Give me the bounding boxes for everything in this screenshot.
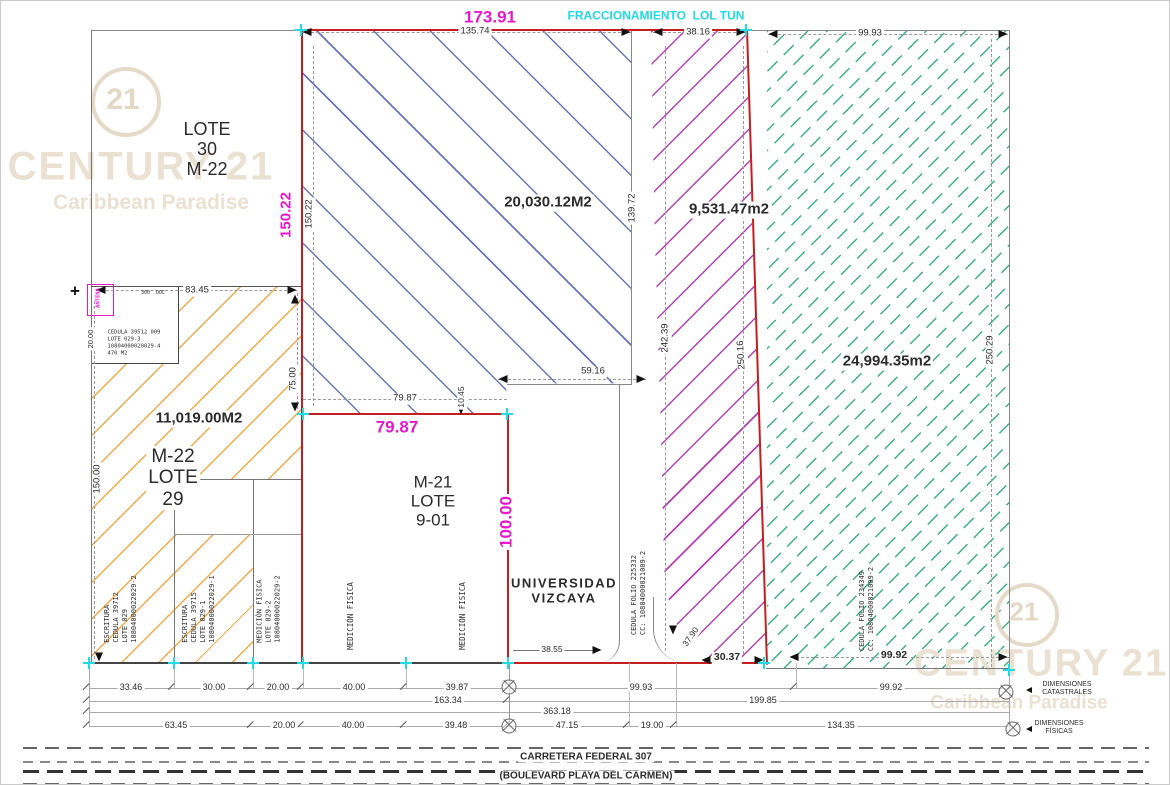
medicion-col-2: MEDICIÓN FISICA bbox=[346, 582, 356, 650]
dimension-arrow-icon bbox=[999, 653, 1008, 661]
fraccionamiento-label: FRACCIONAMIENTO LOL TUN bbox=[568, 9, 745, 22]
datum-circle-icon bbox=[1002, 718, 1023, 739]
dim-v: 242.39 bbox=[661, 321, 672, 354]
dim-fis: 20.00 bbox=[271, 720, 298, 730]
escritura-col-2: ESCRITURA CEDULA 39715 LOTE 029-1 108040… bbox=[181, 575, 217, 642]
dim-cat: 99.92 bbox=[878, 682, 905, 692]
survey-cross-icon bbox=[400, 657, 412, 669]
survey-cross-icon bbox=[740, 24, 752, 36]
drawing-line bbox=[766, 668, 1010, 669]
dim-guide-dashed bbox=[498, 379, 646, 380]
medicion-col-1: MEDICIÓN FISICA LOTE 029-2 1080400002202… bbox=[255, 575, 282, 642]
drawing-line bbox=[91, 30, 302, 31]
parcel-green-hatch bbox=[767, 31, 1009, 669]
antena-label: ANTENA bbox=[95, 288, 102, 308]
survey-cross-icon bbox=[758, 657, 770, 669]
drawing-line bbox=[629, 663, 630, 726]
dim-h: 83.45 bbox=[183, 286, 211, 297]
dim-cat: 20.00 bbox=[265, 682, 292, 692]
medicion-col-3: MEDICIÓN FISICA bbox=[458, 582, 468, 650]
datum-circle-icon bbox=[498, 715, 519, 736]
drawing-line bbox=[507, 384, 632, 385]
escritura-col-1: ESCRITURA CEDULA 39712 LOTE 029 10804000… bbox=[103, 575, 139, 642]
road-name: CARRETERA FEDERAL 307 bbox=[518, 751, 654, 762]
dim-v: 250.16 bbox=[736, 338, 748, 372]
boundary-line-red bbox=[301, 413, 509, 415]
dim-v: 10.45 bbox=[457, 384, 467, 409]
dimension-arrow-icon bbox=[769, 30, 778, 38]
dim-h: 59.16 bbox=[579, 367, 607, 378]
watermark-logo-21-bottom: 21 bbox=[1010, 597, 1039, 626]
lote-30-label: LOTE 30 M-22 bbox=[183, 119, 230, 179]
dimension-arrow-icon bbox=[999, 30, 1008, 38]
dim-subtotal: 199.85 bbox=[747, 695, 779, 705]
detail-box-top-text: 300 DOC bbox=[141, 290, 165, 297]
dimension-arrow-icon bbox=[593, 646, 602, 654]
dimensiones-fisicas-label: DIMENSIONES FÍSICAS bbox=[1034, 720, 1083, 736]
dim-top-3: 99.93 bbox=[856, 29, 884, 40]
drawing-line bbox=[89, 701, 1009, 702]
universidad-label: UNIVERSIDAD VIZCAYA bbox=[511, 576, 617, 605]
boundary-line-red bbox=[301, 29, 748, 31]
watermark-sub-top: Caribbean Paradise bbox=[53, 191, 249, 215]
dimension-arrow-icon bbox=[669, 626, 677, 635]
dimension-arrow-icon bbox=[702, 656, 711, 664]
dim-magenta-7987: 79.87 bbox=[376, 417, 419, 436]
dim-cat: 30.00 bbox=[201, 682, 228, 692]
dim-cat: 33.46 bbox=[118, 682, 145, 692]
survey-cross-icon bbox=[297, 657, 309, 669]
drawing-line bbox=[89, 663, 90, 727]
survey-cross-icon bbox=[1003, 664, 1015, 676]
dimension-arrow-icon bbox=[654, 28, 663, 36]
area-orange: 11,019.00M2 bbox=[154, 411, 245, 428]
dim-v: 75.00 bbox=[289, 365, 300, 393]
survey-cross-icon bbox=[168, 657, 180, 669]
dim-v: 250.29 bbox=[986, 333, 997, 366]
dimension-arrow-icon bbox=[622, 28, 631, 36]
dimension-arrow-icon bbox=[1026, 687, 1032, 693]
dim-v: 150.22 bbox=[305, 197, 316, 230]
parcel-blue-hatch bbox=[303, 31, 631, 414]
dimension-arrow-icon bbox=[95, 653, 103, 662]
survey-cross-icon bbox=[297, 408, 309, 420]
drawing-line bbox=[676, 663, 677, 726]
dim-magenta-100: 100.00 bbox=[496, 494, 515, 550]
dim-overall-top: 173.91 bbox=[462, 7, 518, 26]
datum-circle-icon bbox=[498, 676, 519, 697]
dim-v: 139.72 bbox=[628, 191, 639, 224]
survey-cross-icon bbox=[295, 24, 307, 36]
watermark-logo-21-top: 21 bbox=[106, 83, 139, 117]
dim-cat: 99.93 bbox=[628, 682, 655, 692]
dim-h: 38.55 bbox=[539, 645, 564, 655]
dimension-arrow-icon bbox=[499, 375, 508, 383]
drawing-line bbox=[297, 721, 304, 728]
detail-box-text: CEDULA 39512 009 LOTE 029-3 108040000200… bbox=[108, 330, 161, 359]
dim-total: 363.18 bbox=[541, 706, 573, 716]
dim-top-1: 135.74 bbox=[458, 27, 491, 38]
dim-subtotal: 163.34 bbox=[432, 695, 464, 705]
lote-9-01-label: M-21 LOTE 9-01 bbox=[411, 472, 455, 529]
dim-magenta-left: 150.22 bbox=[279, 190, 296, 240]
drawing-line bbox=[400, 721, 407, 728]
drawing-line bbox=[1009, 30, 1010, 670]
dimension-arrow-icon bbox=[288, 286, 297, 294]
area-green: 24,994.35m2 bbox=[841, 354, 933, 371]
drawing-line bbox=[619, 384, 620, 622]
watermark-brand-top: CENTURY 21 bbox=[8, 145, 275, 190]
drawing-line bbox=[89, 726, 1009, 727]
watermark-brand-bottom: CENTURY 21 bbox=[914, 643, 1168, 686]
dim-h: 79.87 bbox=[391, 394, 419, 405]
dim-h: 99.92 bbox=[879, 650, 909, 662]
dimensiones-catastrales-label: DIMENSIONES CATASTRALES bbox=[1042, 681, 1092, 697]
dim-cat: 40.00 bbox=[341, 682, 368, 692]
dimension-arrow-icon bbox=[291, 295, 299, 304]
detail-box-marker: + bbox=[70, 281, 80, 300]
dim-guide-dashed bbox=[768, 34, 1008, 35]
road-dash-line-4 bbox=[23, 783, 1149, 785]
dim-fis: 39.48 bbox=[443, 720, 470, 730]
cedula-green: CEDULA FOLIO 234349 CC: 10804000021009-2 bbox=[858, 567, 876, 651]
dim-fis: 63.45 bbox=[163, 720, 190, 730]
drawing-line bbox=[766, 30, 1010, 31]
dim-fis: 40.00 bbox=[340, 720, 367, 730]
road-alt-name: (BOULEVARD PLAYA DEL CARMEN) bbox=[498, 770, 675, 781]
drawing-line bbox=[253, 479, 254, 663]
area-blue: 20,030.12M2 bbox=[502, 195, 594, 212]
dim-cat: 39.87 bbox=[444, 682, 471, 692]
dimension-arrow-icon bbox=[1026, 726, 1032, 732]
drawing-line bbox=[174, 534, 302, 535]
road-dash-line-1 bbox=[23, 747, 1149, 749]
dim-top-2: 38.16 bbox=[684, 28, 712, 39]
dim-fis: 134.35 bbox=[825, 720, 857, 730]
cedula-universidad: CEDULA FOLIO 225332 CC: 10804000021009-2 bbox=[630, 551, 648, 635]
dim-v: 20.00 bbox=[87, 328, 95, 351]
survey-cross-icon bbox=[502, 657, 514, 669]
survey-cross-icon bbox=[83, 657, 95, 669]
boundary-line-red bbox=[301, 29, 303, 664]
survey-cross-icon bbox=[501, 408, 513, 420]
dim-v: 150.00 bbox=[93, 462, 104, 495]
dim-fis: 19.00 bbox=[639, 720, 666, 730]
drawing-line bbox=[247, 721, 254, 728]
dimension-arrow-icon bbox=[790, 653, 799, 661]
survey-plan-canvas: 21CENTURY 21Caribbean Paradise21CENTURY … bbox=[0, 0, 1170, 785]
dim-fis: 47.15 bbox=[554, 720, 581, 730]
lote-29-label: M-22 LOTE 29 bbox=[146, 446, 200, 510]
dimension-arrow-icon bbox=[637, 375, 646, 383]
road-flare-left bbox=[595, 617, 620, 663]
dim-h: 30.37 bbox=[712, 652, 742, 664]
survey-cross-icon bbox=[247, 657, 259, 669]
area-purple: 9,531.47m2 bbox=[687, 202, 771, 219]
